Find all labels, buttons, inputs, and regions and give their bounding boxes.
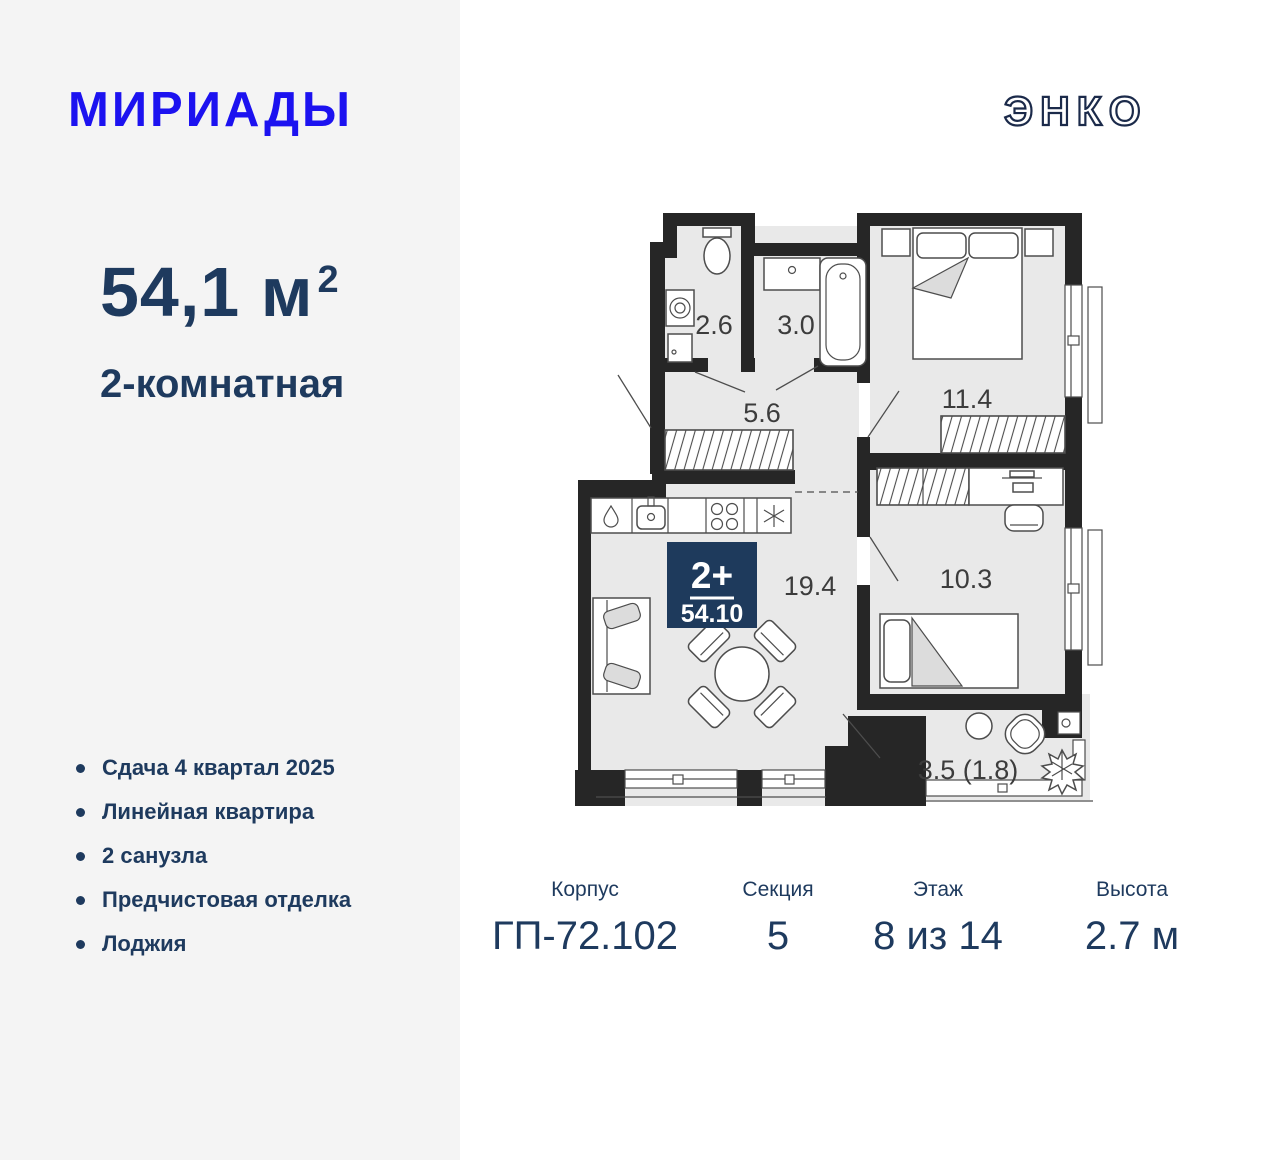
feature-label: Лоджия <box>102 931 187 957</box>
spec-value: 2.7 м <box>1085 914 1179 959</box>
brand-logo: МИРИАДЫ <box>68 82 448 138</box>
feature-item: Сдача 4 квартал 2025 <box>76 746 351 790</box>
left-panel <box>0 0 460 1160</box>
badge-area: 54.10 <box>681 600 744 628</box>
loggia-table-icon <box>966 713 992 739</box>
feature-label: Сдача 4 квартал 2025 <box>102 755 335 781</box>
spec-section: Секция 5 <box>742 878 813 959</box>
feature-item: Лоджия <box>76 922 351 966</box>
spec-value: 8 из 14 <box>873 914 1003 959</box>
spec-building: Корпус ГП-72.102 <box>492 878 678 959</box>
kitchen-counter <box>591 497 791 533</box>
apartment-card: МИРИАДЫ ЭНКО 54,1 м2 2-комнатная Сдача 4… <box>0 0 1280 1160</box>
feature-label: Предчистовая отделка <box>102 887 351 913</box>
spec-value: ГП-72.102 <box>492 914 678 959</box>
room-label-loggia: 3.5 (1.8) <box>918 755 1019 785</box>
bullet-icon <box>76 896 85 905</box>
feature-label: 2 санузла <box>102 843 207 869</box>
ac-unit-icon <box>1058 712 1080 734</box>
area-value: 54,1 <box>100 253 240 331</box>
wardrobe-icon <box>941 416 1065 453</box>
spec-floor: Этаж 8 из 14 <box>873 878 1003 959</box>
floorplan: 2.6 3.0 5.6 11.4 19.4 10.3 3.5 (1.8) 2+ … <box>575 210 1105 810</box>
apartment-type: 2-комнатная <box>100 362 344 407</box>
toilet-icon <box>703 228 731 274</box>
spec-label: Этаж <box>873 878 1003 902</box>
bullet-icon <box>76 940 85 949</box>
washing-machine-icon <box>666 290 694 326</box>
room-label-kitchen-living: 19.4 <box>784 571 837 601</box>
spec-height: Высота 2.7 м <box>1085 878 1179 959</box>
developer-logo: ЭНКО <box>1004 88 1148 135</box>
bullet-icon <box>76 764 85 773</box>
feature-item: Линейная квартира <box>76 790 351 834</box>
room-label-bedroom2: 10.3 <box>940 564 993 594</box>
nightstand-icon <box>1025 229 1053 256</box>
room-label-hallway: 5.6 <box>743 398 781 428</box>
wardrobe-icon <box>665 430 793 470</box>
area-superscript: 2 <box>318 259 340 301</box>
bullet-icon <box>76 852 85 861</box>
room-label-bathroom: 3.0 <box>777 310 815 340</box>
sofa-icon <box>593 598 650 694</box>
bathtub-icon <box>820 258 866 366</box>
cabinet-icon <box>668 334 692 362</box>
badge-rooms: 2+ <box>691 555 733 596</box>
apartment-area: 54,1 м2 <box>100 252 340 332</box>
sink-icon <box>764 258 820 290</box>
area-unit: м <box>261 253 314 331</box>
plan-badge: 2+ 54.10 <box>667 542 757 628</box>
double-bed-icon <box>913 228 1022 359</box>
spec-value: 5 <box>742 914 813 959</box>
spec-label: Высота <box>1085 878 1179 902</box>
feature-list: Сдача 4 квартал 2025 Линейная квартира 2… <box>76 746 351 966</box>
feature-item: Предчистовая отделка <box>76 878 351 922</box>
bullet-icon <box>76 808 85 817</box>
spec-label: Корпус <box>492 878 678 902</box>
wardrobe-icon <box>877 468 969 505</box>
feature-label: Линейная квартира <box>102 799 314 825</box>
room-label-bedroom1: 11.4 <box>942 384 993 414</box>
single-bed-icon <box>880 614 1018 688</box>
room-label-wc: 2.6 <box>695 310 733 340</box>
desk-chair-icon <box>1005 505 1043 531</box>
spec-label: Секция <box>742 878 813 902</box>
feature-item: 2 санузла <box>76 834 351 878</box>
nightstand-icon <box>882 229 910 256</box>
